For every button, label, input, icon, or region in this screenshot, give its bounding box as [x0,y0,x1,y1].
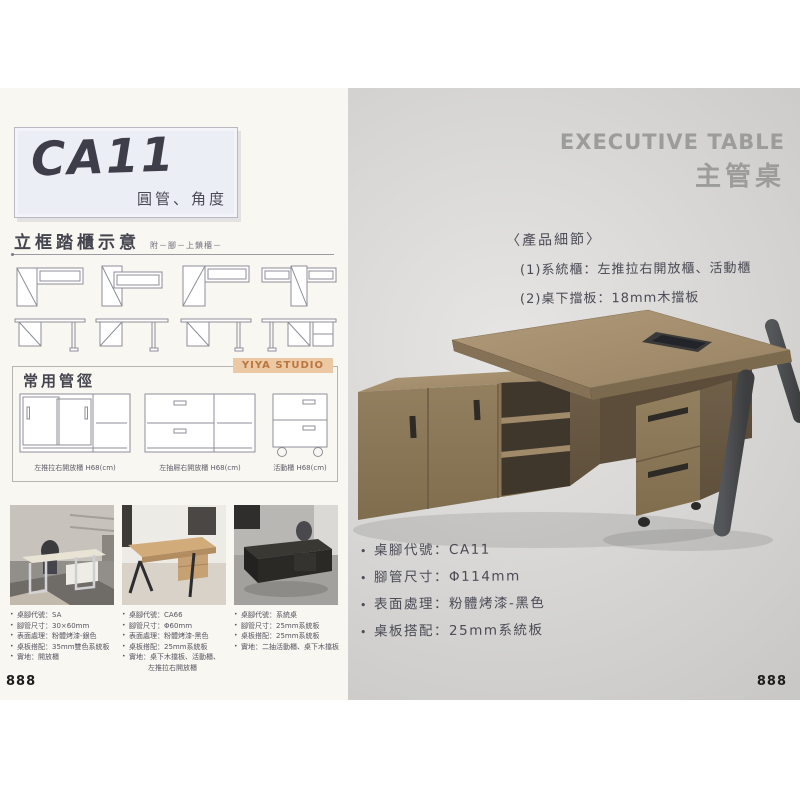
spec-line: 桌板搭配：25mm系統板 [122,642,228,653]
frames-section-title: 立框踏櫃示意 [14,228,140,253]
spec-line: 腳管尺寸：30×60mm [10,621,116,632]
drawer-cabinet-line-art [144,393,256,459]
page-number-right: 888 [757,674,787,689]
right-page: EXECUTIVE TABLE 主管桌 〈產品細節〉 (1)系統櫃：左推拉右開放… [348,88,800,700]
catalog-page: CA11 圓管、角度 立框踏櫃示意 附－腳－上鎖櫃－ [0,0,800,800]
desk-render-illustration [348,288,800,564]
product-photo-3 [234,505,338,605]
spec-bullet: 桌腳代號：CA11 [358,536,546,565]
frame-diagram-front-2 [91,312,174,358]
product-photo-2 [122,505,226,605]
spec-line: 實地：開放櫃 [10,652,116,663]
door-handle [473,400,480,420]
spec-bullet-list: 桌腳代號：CA11 腳管尺寸：Φ114mm 表面處理：粉體烤漆-黑色 桌板搭配：… [358,537,545,645]
spec-bullet: 表面處理：粉體烤漆-黑色 [358,590,546,619]
door-handle [409,416,416,438]
product-photo-row [10,505,338,605]
page-number-left: 888 [6,674,36,689]
spec-line: 桌腳代號：SA [10,610,116,621]
cabinet-section-title: 常用管徑 [23,370,95,391]
product-code: CA11 [30,127,176,187]
spec-line: 桌腳代號：系統桌 [234,610,340,621]
spec-line: 桌板搭配：35mm雙色系統板 [10,642,116,653]
frame-diagram-front-4 [257,312,340,358]
frame-diagram-grid [8,262,342,358]
page-title-en: EXECUTIVE TABLE [560,130,785,154]
spec-line: 左推拉右開放櫃 [122,663,228,674]
photo-spec-row: 桌腳代號：SA 腳管尺寸：30×60mm 表面處理：粉體烤漆-銀色 桌板搭配：3… [10,610,342,673]
cabinet-caption: 左抽屜右開放櫃 H68(cm) [159,463,241,473]
cabinet-drawing-sliding: 左推拉右開放櫃 H68(cm) [19,393,131,473]
spec-line: 腳管尺寸：Φ60mm [122,621,228,632]
frames-section-note: 附－腳－上鎖櫃－ [150,240,222,251]
frame-diagram-plan-1 [8,262,91,312]
cabinet-section-box: YIYA STUDIO 常用管徑 左推拉右開放櫃 H68(cm) 左抽屜右開放櫃… [12,366,338,482]
section-divider [14,254,334,255]
details-heading: 〈產品細節〉 [506,226,752,250]
product-code-subtitle: 圓管、角度 [137,188,227,209]
product-code-box: CA11 圓管、角度 [14,127,238,218]
caster [638,517,650,527]
cabinet-caption: 左推拉右開放櫃 H68(cm) [34,463,116,473]
mobile-pedestal-line-art [269,393,331,459]
frame-diagram-plan-3 [174,262,257,312]
spec-line: 表面處理：粉體烤漆-銀色 [10,631,116,642]
right-page-titles: EXECUTIVE TABLE 主管桌 [560,130,785,193]
photo-spec-column-1: 桌腳代號：SA 腳管尺寸：30×60mm 表面處理：粉體烤漆-銀色 桌板搭配：3… [10,610,116,673]
frames-section-header: 立框踏櫃示意 附－腳－上鎖櫃－ [14,228,222,253]
cabinet-drawing-mobile: 活動櫃 H68(cm) [269,393,331,473]
spec-bullet: 桌板搭配：25mm系統板 [358,617,546,646]
cabinet-drawing-drawer: 左抽屜右開放櫃 H68(cm) [144,393,256,473]
photo-spec-column-3: 桌腳代號：系統桌 腳管尺寸：25mm系統板 桌板搭配：25mm系統板 實地：二抽… [234,610,340,673]
spec-line: 桌板搭配：25mm系統板 [234,631,340,642]
left-page: CA11 圓管、角度 立框踏櫃示意 附－腳－上鎖櫃－ [0,88,348,700]
spec-line: 桌腳代號：CA66 [122,610,228,621]
spec-line: 腳管尺寸：25mm系統板 [234,621,340,632]
floor-shadow [603,529,773,551]
frame-diagram-plan-2 [91,262,174,312]
sliding-cabinet-line-art [19,393,131,459]
product-photo-1 [10,505,114,605]
cabinet-caption: 活動櫃 H68(cm) [273,463,327,473]
cabinet-drawings-row: 左推拉右開放櫃 H68(cm) 左抽屜右開放櫃 H68(cm) 活動櫃 H68(… [19,393,331,473]
spec-line: 實地：桌下木擋板、活動櫃、 [122,652,228,663]
studio-badge: YIYA STUDIO [233,358,333,373]
spec-line: 實地：二抽活動櫃、桌下木擋板 [234,642,340,653]
spec-bullet: 腳管尺寸：Φ114mm [358,563,546,592]
photo-spec-column-2: 桌腳代號：CA66 腳管尺寸：Φ60mm 表面處理：粉體烤漆-黑色 桌板搭配：2… [122,610,228,673]
caster [691,502,701,510]
frame-diagram-front-3 [174,312,257,358]
spec-line: 表面處理：粉體烤漆-黑色 [122,631,228,642]
details-line: (1)系統櫃：左推拉右開放櫃、活動櫃 [520,257,752,278]
frame-diagram-plan-4 [257,262,340,312]
page-title-zh: 主管桌 [560,156,785,193]
rear-leg [772,326,800,416]
frame-diagram-front-1 [8,312,91,358]
